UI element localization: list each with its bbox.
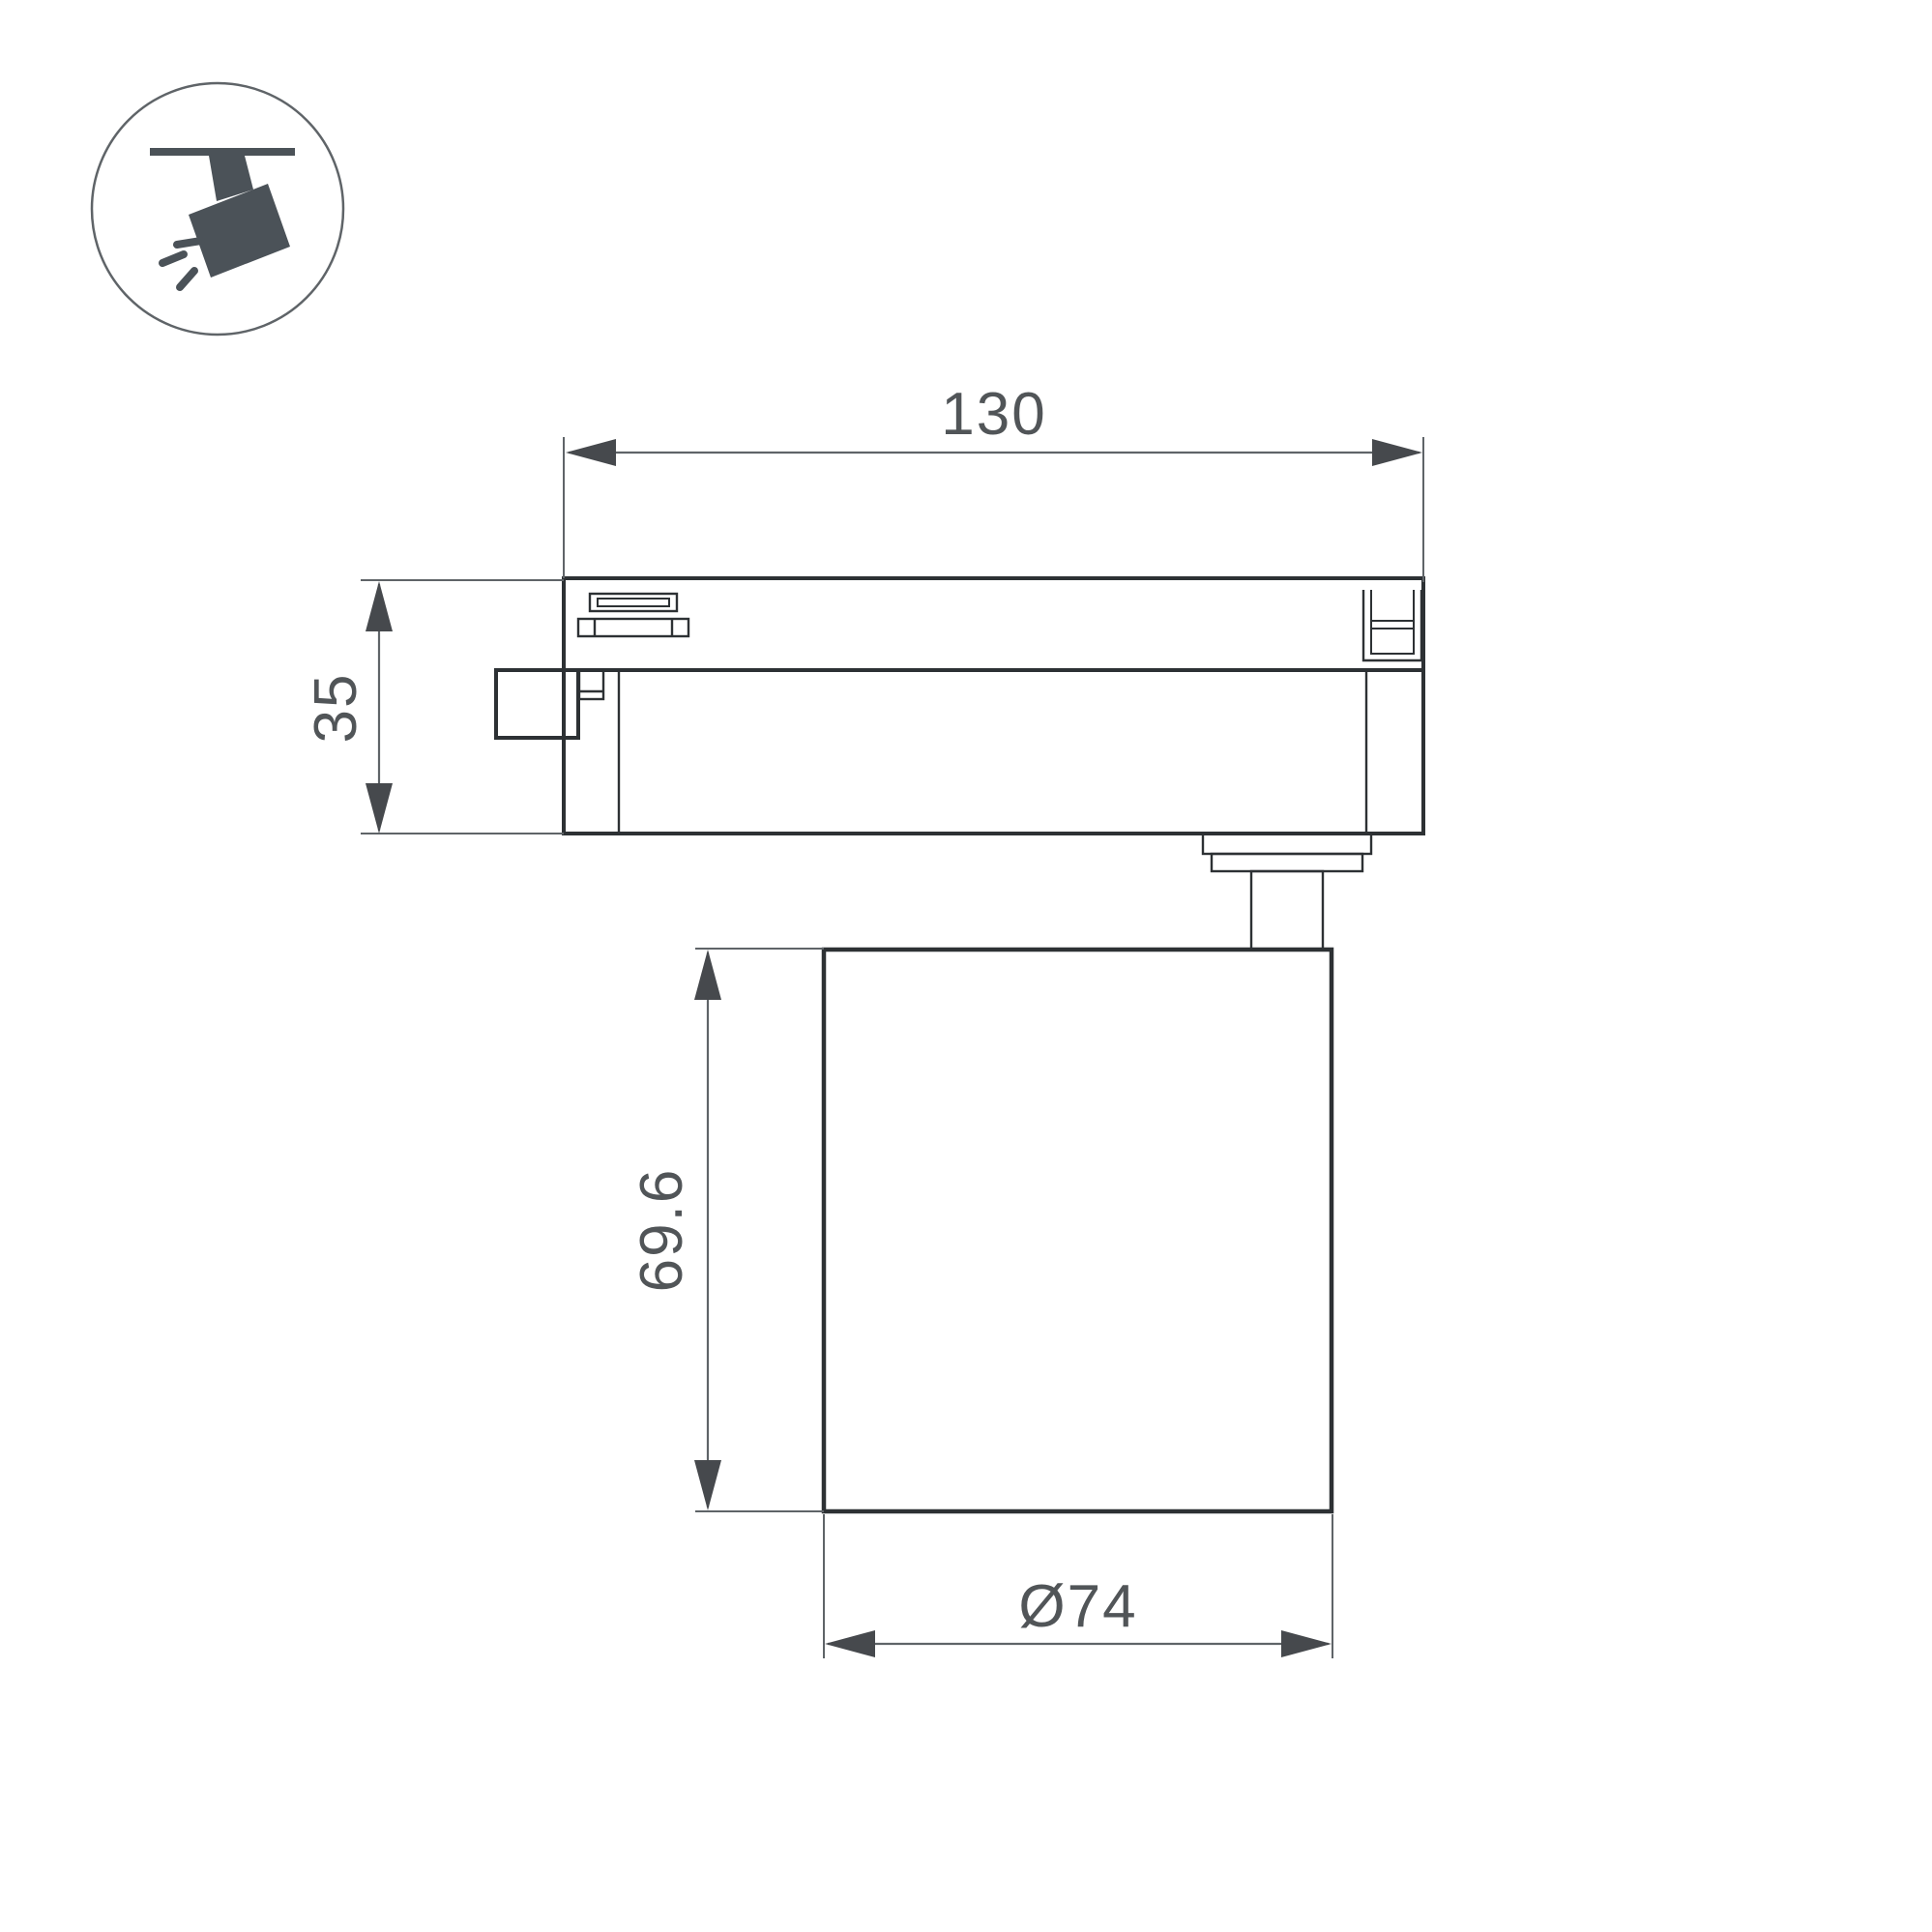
arrowhead-right xyxy=(1281,1630,1332,1657)
icon-lamp-body xyxy=(189,184,290,278)
arrowhead-up xyxy=(694,950,721,1000)
lamp-cylinder-body xyxy=(824,950,1332,1511)
pivot-plate-upper xyxy=(1203,834,1371,854)
adapter-lock-knob xyxy=(496,670,578,738)
drawing-canvas: 130 35 69.6 Ø74 xyxy=(0,0,1932,1932)
pivot-plate-lower xyxy=(1212,854,1362,871)
dimension-label-track-height: 35 xyxy=(303,673,369,744)
adapter-body xyxy=(564,578,1423,834)
arrowhead-right xyxy=(1372,439,1422,466)
arrowhead-up xyxy=(366,581,393,631)
dimension-drawing: 130 35 69.6 Ø74 xyxy=(0,0,1932,1932)
lamp-head-outline xyxy=(824,834,1371,1511)
icon-light-ray xyxy=(162,254,184,263)
icon-light-ray xyxy=(177,241,201,245)
dimension-label-body-height: 69.6 xyxy=(629,1168,695,1293)
dimension-track-length: 130 xyxy=(564,381,1423,582)
track-spotlight-icon xyxy=(92,83,343,335)
arrowhead-down xyxy=(694,1460,721,1510)
adapter-latch-detail xyxy=(579,670,603,699)
dimension-label-body-diameter: Ø74 xyxy=(1018,1573,1137,1640)
adapter-contact-clip-inner xyxy=(598,599,669,606)
dimension-label-track-length: 130 xyxy=(941,381,1046,448)
arrowhead-left xyxy=(825,1630,875,1657)
track-adapter-outline xyxy=(496,578,1423,834)
dimension-body-height: 69.6 xyxy=(629,949,824,1511)
dimension-track-height: 35 xyxy=(303,580,564,834)
icon-light-ray xyxy=(180,271,194,287)
pivot-stem xyxy=(1251,871,1323,950)
adapter-contact-clip-outer xyxy=(590,594,677,611)
arrowhead-down xyxy=(366,783,393,834)
arrowhead-left xyxy=(566,439,616,466)
dimension-body-diameter: Ø74 xyxy=(824,1514,1332,1658)
icon-track-bar xyxy=(150,148,295,156)
